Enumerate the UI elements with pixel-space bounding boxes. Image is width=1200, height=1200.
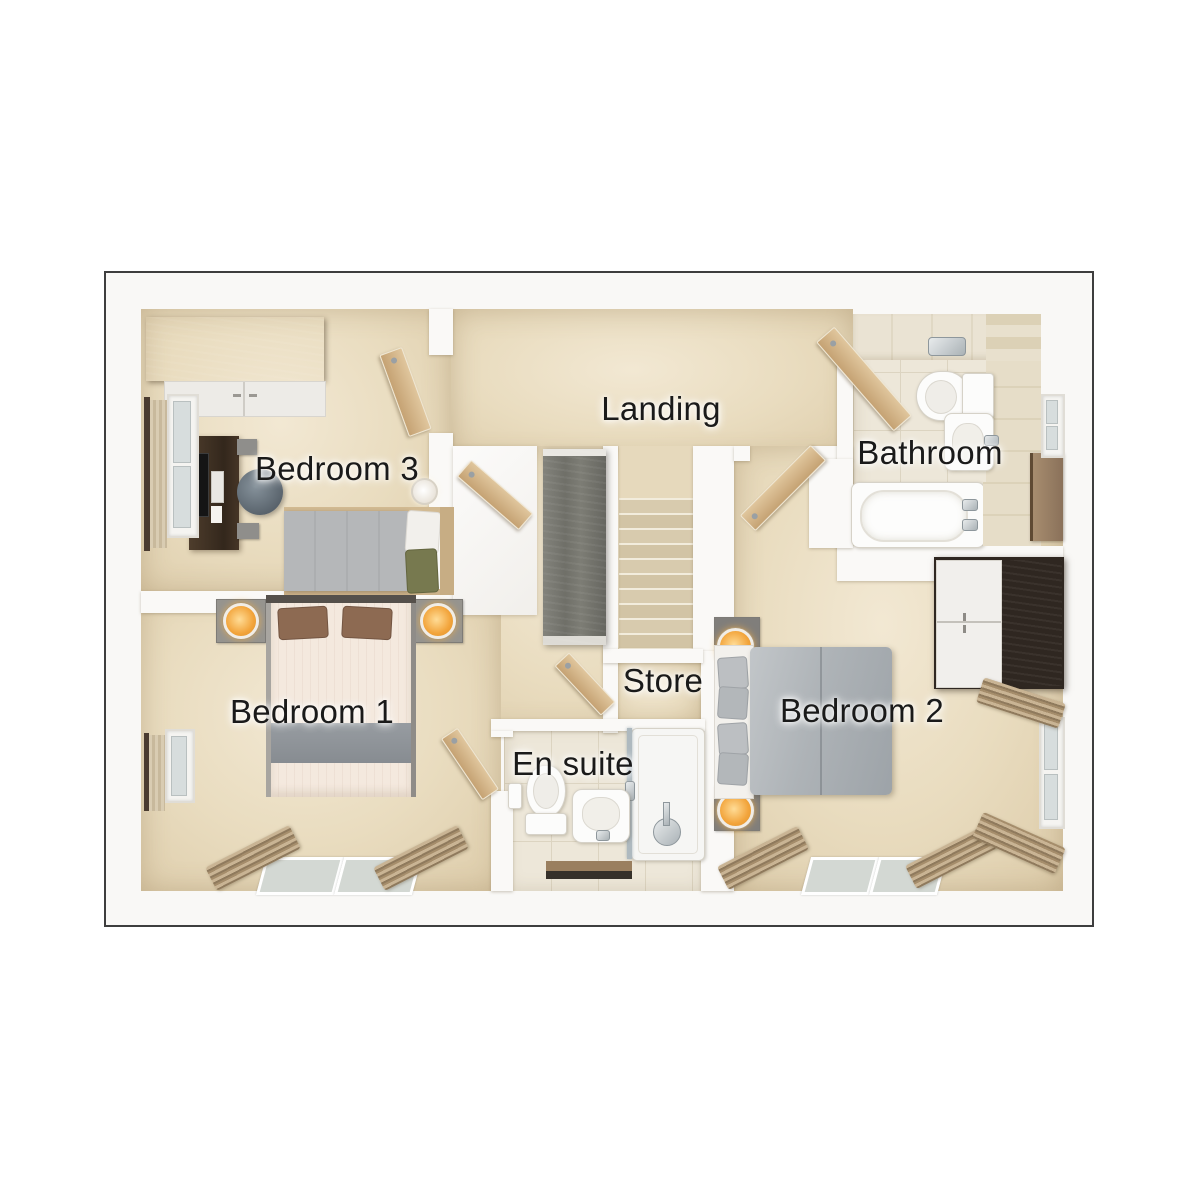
wall	[734, 446, 750, 461]
floor-landing	[451, 309, 853, 461]
label-bathroom: Bathroom	[857, 434, 1002, 472]
window	[165, 729, 195, 803]
window	[1039, 717, 1065, 829]
pillow	[405, 548, 439, 594]
flush-plate	[928, 337, 966, 356]
pillow	[717, 686, 749, 720]
bath-mat	[546, 871, 632, 879]
label-bedroom-3: Bedroom 3	[255, 450, 419, 488]
pillow	[717, 752, 749, 786]
desk-shelf	[237, 523, 259, 539]
wall	[429, 309, 453, 355]
stair-top-landing	[619, 446, 693, 498]
curtain	[150, 400, 167, 548]
wardrobe	[934, 557, 1064, 689]
staircase	[619, 446, 693, 651]
wall	[603, 649, 703, 663]
pillow	[717, 656, 749, 690]
window	[1041, 394, 1065, 458]
bed-headboard	[440, 507, 454, 595]
single-bed	[284, 507, 454, 595]
washbasin	[572, 789, 630, 843]
wall	[491, 731, 513, 737]
toilet-cistern	[525, 813, 567, 835]
label-ensuite: En suite	[512, 745, 634, 783]
desk-paper	[211, 506, 222, 523]
label-landing: Landing	[601, 390, 721, 428]
pillow	[405, 510, 442, 554]
pillow	[717, 722, 749, 756]
desk-keyboard	[211, 471, 224, 503]
floor-plan: Bedroom 3 Landing Bathroom Bedroom 1 Sto…	[104, 271, 1094, 927]
bathtub	[851, 482, 985, 548]
toilet-roll-holder	[508, 783, 522, 809]
wall	[809, 459, 853, 548]
bedside-lamp	[420, 603, 456, 639]
floorplan-canvas: Bedroom 3 Landing Bathroom Bedroom 1 Sto…	[0, 0, 1200, 1200]
window	[167, 394, 199, 538]
shower-enclosure	[627, 726, 705, 861]
bedside-lamp	[223, 603, 259, 639]
label-bedroom-2: Bedroom 2	[780, 692, 944, 730]
pillow	[277, 606, 329, 641]
bathroom-corner-tiles	[986, 314, 1041, 361]
pillow	[341, 606, 393, 641]
basin-tap	[596, 830, 610, 841]
label-bedroom-1: Bedroom 1	[230, 693, 394, 731]
bath-tap	[962, 519, 978, 531]
shower-pipe	[663, 802, 670, 826]
wardrobe	[146, 317, 324, 381]
duvet	[284, 511, 408, 591]
curtain	[149, 735, 165, 811]
window	[801, 857, 879, 895]
label-store: Store	[623, 662, 703, 700]
wardrobe-doors	[936, 560, 1002, 688]
bath-tap	[962, 499, 978, 511]
landing-cabinet	[543, 449, 606, 645]
bathroom-cabinet	[1030, 453, 1063, 541]
